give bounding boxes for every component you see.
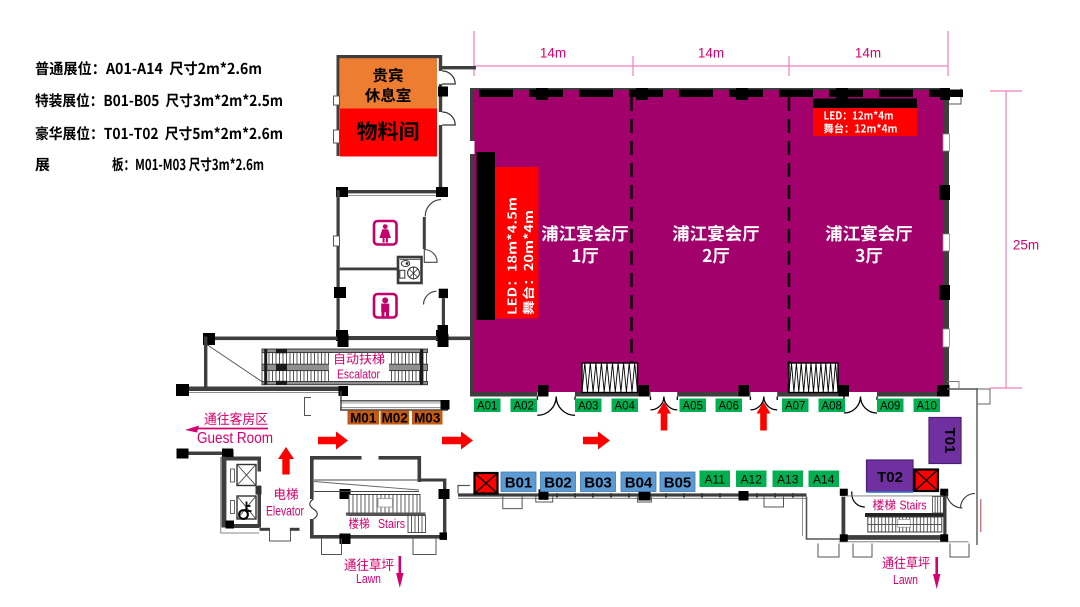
svg-text:A09: A09 <box>880 401 900 413</box>
svg-text:A10: A10 <box>916 401 936 413</box>
svg-text:T02: T02 <box>877 469 903 486</box>
svg-text:A11: A11 <box>704 473 725 487</box>
svg-text:25m: 25m <box>1013 238 1039 253</box>
svg-text:A01: A01 <box>477 401 497 413</box>
svg-text:Escalator: Escalator <box>337 367 381 382</box>
svg-text:Lawn: Lawn <box>356 571 381 586</box>
svg-text:A13: A13 <box>777 473 799 487</box>
svg-text:B04: B04 <box>625 475 653 492</box>
svg-text:A14: A14 <box>813 473 835 487</box>
svg-text:A03: A03 <box>578 401 598 413</box>
svg-text:Lawn: Lawn <box>893 572 918 587</box>
svg-text:14m: 14m <box>540 46 566 61</box>
svg-text:A02: A02 <box>513 401 533 413</box>
svg-text:B03: B03 <box>584 475 612 492</box>
svg-text:B02: B02 <box>544 475 572 492</box>
svg-text:A05: A05 <box>682 401 702 413</box>
svg-text:A12: A12 <box>741 473 763 487</box>
svg-text:B01: B01 <box>505 475 533 492</box>
svg-text:14m: 14m <box>698 46 724 61</box>
svg-text:M02: M02 <box>382 410 408 425</box>
svg-text:T01: T01 <box>941 428 958 454</box>
svg-text:M03: M03 <box>414 410 441 425</box>
svg-text:A06: A06 <box>718 401 738 413</box>
svg-text:B05: B05 <box>664 475 692 492</box>
svg-text:Stairs: Stairs <box>378 516 405 531</box>
svg-text:A08: A08 <box>821 401 841 413</box>
svg-text:Elevator: Elevator <box>266 504 304 519</box>
svg-text:Guest Room: Guest Room <box>197 430 273 447</box>
svg-text:A04: A04 <box>614 401 635 413</box>
svg-text:14m: 14m <box>855 46 881 61</box>
svg-text:A07: A07 <box>785 401 805 413</box>
svg-text:Stairs: Stairs <box>900 498 927 513</box>
svg-text:M01: M01 <box>350 410 377 425</box>
